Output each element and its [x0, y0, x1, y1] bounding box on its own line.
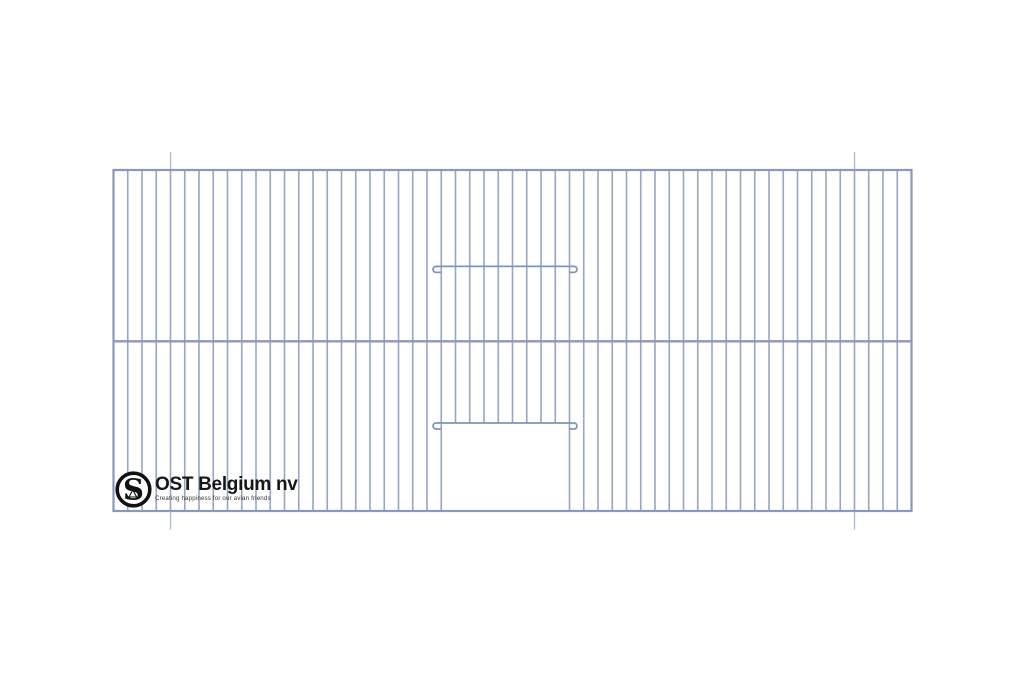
door-hook-wire — [433, 423, 577, 429]
company-name: OST Belgium nv — [155, 475, 298, 494]
company-logo: S OST Belgium nv Creating happiness for … — [114, 470, 298, 509]
page-canvas: S OST Belgium nv Creating happiness for … — [0, 0, 1024, 683]
cage-front-drawing — [0, 0, 1024, 683]
company-logo-mark: S — [114, 470, 153, 509]
logo-monogram-letter: S — [123, 473, 144, 507]
company-logo-text: OST Belgium nv Creating happiness for ou… — [155, 470, 298, 502]
company-tagline: Creating happiness for our avian friends — [155, 495, 298, 502]
